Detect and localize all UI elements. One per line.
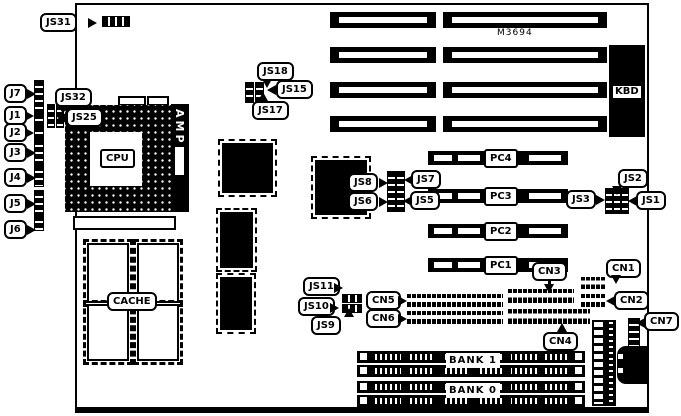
connector-label-j5: J5 (4, 194, 27, 213)
cpu-label: CPU (100, 149, 135, 168)
js8-js6-jumper (387, 171, 396, 212)
pci-slot-stripe (434, 155, 452, 161)
cache-chip (87, 304, 129, 361)
pci-slot-stripe (458, 193, 480, 199)
jumper-label-js3: JS3 (566, 190, 596, 209)
cn6-header (407, 311, 503, 324)
isa-slot-stripe (339, 87, 427, 93)
din-keyboard-port (617, 346, 648, 384)
connector-label-cn2: CN2 (614, 291, 649, 310)
isa-slot-4-left (330, 116, 436, 132)
isa-slot-stripe (339, 17, 427, 23)
bank0-label: BANK 0 (446, 383, 500, 398)
pci-slot-stripe (529, 193, 561, 199)
power-pins (609, 322, 613, 404)
pci-slot-stripe (458, 155, 480, 161)
pointer-down (612, 186, 622, 195)
pointer-left (267, 85, 276, 95)
pointer-right (25, 128, 34, 138)
jumper-label-js15: JS15 (276, 80, 313, 99)
jumper-label-js1: JS1 (636, 191, 666, 210)
simm-clip (574, 366, 583, 375)
pci-slot-stripe (529, 228, 561, 234)
pointer-down (544, 284, 554, 293)
pointer-down (611, 275, 621, 284)
pointer-right (398, 296, 407, 306)
connector-label-cn6: CN6 (366, 309, 401, 328)
power-connector (592, 320, 616, 406)
isa-slot-1-right (443, 12, 607, 28)
jumper-label-js7: JS7 (411, 170, 441, 189)
pci-slot-stripe (434, 228, 452, 234)
pci-slot-stripe (458, 262, 480, 268)
simm-contacts (375, 398, 567, 404)
pci-slot-stripe (529, 155, 561, 161)
js31-jumper (102, 16, 130, 27)
js18-jumper (245, 82, 254, 103)
simm-clip (359, 396, 368, 405)
pointer-right (27, 173, 36, 183)
isa-slot-4-right (443, 116, 607, 132)
isa-slot-stripe (339, 52, 427, 58)
connector-label-cn5: CN5 (366, 291, 401, 310)
connector-label-cn4: CN4 (543, 332, 578, 351)
jumper-label-js31: JS31 (40, 13, 77, 32)
pointer-up (557, 323, 567, 332)
slot-label-pc2: PC2 (484, 222, 518, 241)
connector-label-j4: J4 (4, 168, 27, 187)
model-text: M3694 (497, 28, 533, 38)
pointer-right (398, 314, 407, 324)
motherboard-diagram: M3694 KBD JS31 J7 J1 J2 J3 J4 J5 J6 JS32… (0, 0, 681, 416)
pointer-right (88, 18, 97, 28)
pointer-left (403, 196, 412, 206)
connector-label-j2: J2 (4, 123, 27, 142)
isa-slot-stripe (452, 52, 598, 58)
slot-label-pc4: PC4 (484, 149, 518, 168)
pointer-left (404, 175, 413, 185)
ic-chip (220, 212, 253, 268)
isa-slot-1-left (330, 12, 436, 28)
connector-label-j3: J3 (4, 143, 27, 162)
amp-label: AMP (173, 109, 186, 146)
simm-clip (359, 366, 368, 375)
din-notch (618, 354, 623, 359)
jumper-label-js8: JS8 (348, 173, 378, 192)
simm-clip (359, 382, 368, 391)
cache-label: CACHE (107, 292, 157, 311)
isa-slot-2-right (443, 47, 607, 63)
pointer-right (27, 225, 36, 235)
cn1-header (581, 277, 606, 289)
simm-contacts (375, 368, 567, 374)
pointer-right (379, 197, 388, 207)
vrm-connector: AMP (171, 104, 189, 212)
connector-label-j6: J6 (4, 220, 27, 239)
vrm-slot (174, 146, 185, 176)
isa-slot-stripe (339, 121, 427, 127)
socket-lever (73, 216, 176, 230)
pointer-up (258, 92, 268, 101)
jumper-label-js6: JS6 (348, 192, 378, 211)
pointer-left (636, 318, 645, 328)
isa-slot-stripe (452, 121, 598, 127)
cache-chip (137, 304, 179, 361)
cn5-header (407, 294, 503, 307)
pci-slot-stripe (434, 262, 452, 268)
connector-label-cn7: CN7 (644, 312, 679, 331)
pointer-right (330, 303, 339, 313)
js32-jumper (47, 104, 55, 128)
pointer-right (334, 283, 343, 293)
pointer-left (628, 196, 637, 206)
din-notch (618, 368, 623, 373)
isa-slot-3-right (443, 82, 607, 98)
pointer-right (27, 148, 36, 158)
isa-slot-2-left (330, 47, 436, 63)
isa-slot-stripe (452, 17, 598, 23)
pointer-left (57, 113, 66, 123)
pointer-left (606, 296, 615, 306)
pci-slot-stripe (458, 228, 480, 234)
pointer-right (27, 89, 36, 99)
pointer-right (596, 195, 605, 205)
js11-jumper (342, 294, 362, 303)
slot-label-pc3: PC3 (484, 187, 518, 206)
cn3-header (508, 289, 574, 303)
ic-chip (222, 143, 273, 193)
pointer-right (379, 178, 388, 188)
power-pins (594, 322, 603, 404)
slot-label-pc1: PC1 (484, 256, 518, 275)
jumper-label-js2: JS2 (618, 169, 648, 188)
jumper-label-js17: JS17 (252, 101, 289, 120)
simm-clip (574, 352, 583, 361)
pointer-right (25, 111, 34, 121)
pointer-up (344, 308, 354, 317)
pointer-right (27, 199, 36, 209)
simm-clip (574, 396, 583, 405)
isa-slot-stripe (452, 87, 598, 93)
cn4-header (508, 309, 590, 324)
simm-clip (574, 382, 583, 391)
jumper-label-js5: JS5 (410, 191, 440, 210)
connector-label-j7: J7 (4, 84, 27, 103)
simm-clip (359, 352, 368, 361)
ic-chip (220, 277, 252, 330)
jumper-label-js25: JS25 (66, 108, 103, 127)
j1-header (34, 113, 44, 126)
connector-label-cn3: CN3 (532, 262, 567, 281)
kbd-label: KBD (611, 84, 643, 100)
cn2-header (581, 294, 606, 307)
bank1-label: BANK 1 (446, 353, 500, 368)
jumper-label-js9: JS9 (311, 316, 341, 335)
j2-header (34, 126, 44, 140)
isa-slot-3-left (330, 82, 436, 98)
